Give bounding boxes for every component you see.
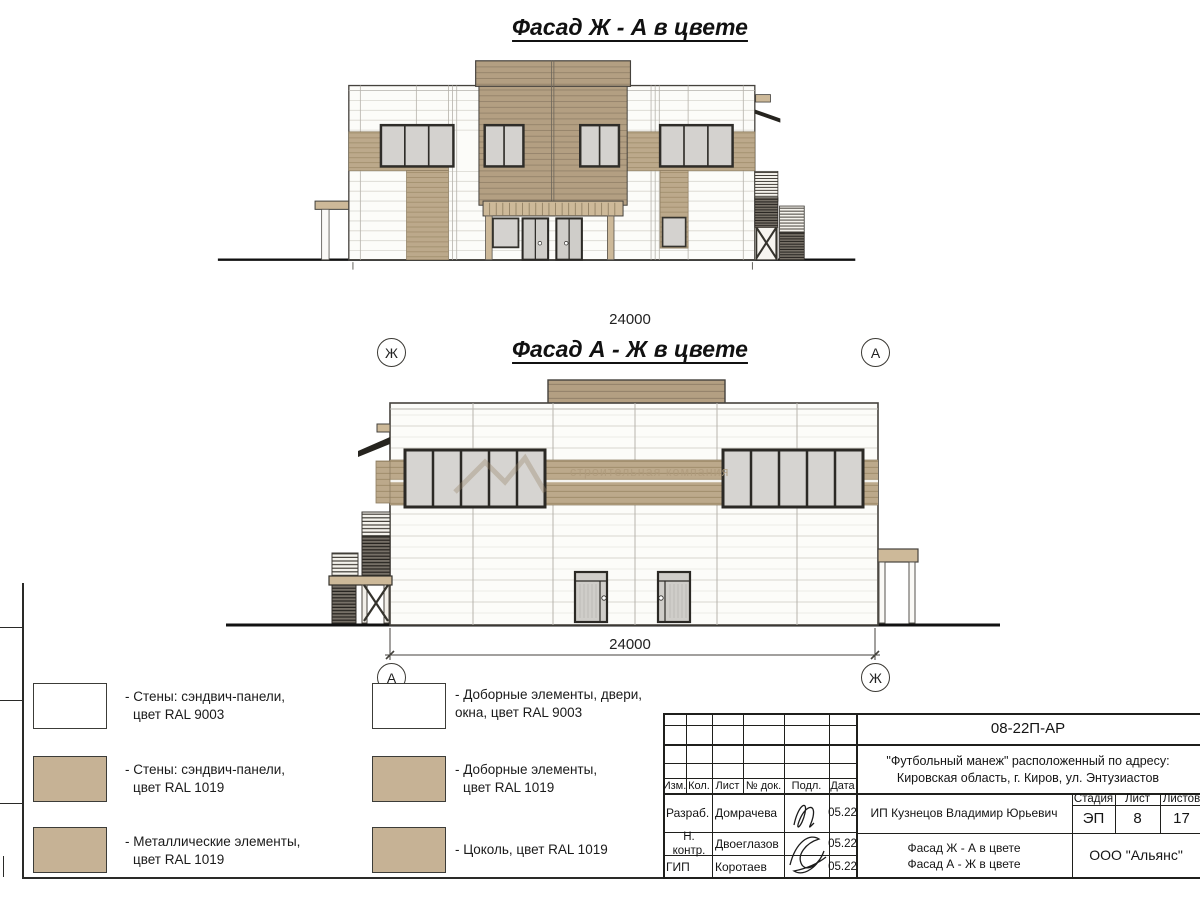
window-2pane-left [485,125,524,166]
facade2-axis-right: Ж [861,663,890,692]
canopy-post-right [607,216,614,260]
door-right [658,572,690,622]
signature-strokes [784,793,829,878]
col-header-podp: Подл. [784,778,829,793]
staff-date: 05.22 [829,855,856,878]
frame-tick [3,856,4,877]
col-header-date: Дата [829,778,856,793]
tan-stripe-left [406,171,448,260]
legend-text: - Цоколь, цвет RAL 1019 [455,842,608,857]
sheet-number: 8 [1115,805,1160,833]
sheets-total: 17 [1160,805,1200,833]
parapet [548,380,725,404]
legend-swatch-metal [33,827,107,873]
stage-label: Стадия [1072,793,1115,805]
window-2pane-right [580,125,619,166]
entrance-door-right [556,218,582,259]
legend-text: - Металлические элементы, [125,834,300,849]
small-window [663,218,686,247]
legend-swatch-ral1019 [33,756,107,802]
facade2-title: Фасад А - Ж в цвете [400,336,860,363]
legend-text: - Доборные элементы, двери, [455,687,642,702]
staff-role: Разраб. [663,793,712,832]
legend-label: - Доборные элементы, цвет RAL 1019 [455,761,597,797]
stage-value: ЭП [1072,805,1115,833]
legend-text: цвет RAL 1019 [455,779,597,797]
building-body [390,403,878,625]
ribbon-window-right [723,450,863,507]
staff-name: Коротаев [712,855,784,878]
sheet-title-line2: Фасад А - Ж в цвете [856,855,1072,873]
staff-name: Домрачева [712,793,784,832]
staff-date: 05.22 [829,832,856,855]
entrance-door-left [523,218,549,259]
left-canopy [315,201,353,260]
drawing-sheet: Фасад Ж - А в цвете [0,0,1200,900]
right-canopy [878,549,918,623]
doc-code: 08-22П-АР [856,713,1200,744]
legend-text: цвет RAL 1019 [125,779,285,797]
legend-label: - Цоколь, цвет RAL 1019 [455,841,608,859]
sheet-title-line1: Фасад Ж - А в цвете [856,835,1072,855]
right-roof-canopy [755,95,781,123]
legend-text: - Стены: сэндвич-панели, [125,689,285,704]
legend-swatch-trim1019 [372,756,446,802]
tan-stripe-right [660,171,688,249]
exterior-stairs-right [755,171,804,259]
staff-role: Н. контр. [663,832,712,855]
canopy-post-left [486,216,493,260]
frame-left-line [22,583,24,878]
facade1-axis-right: А [861,338,890,367]
exterior-stairs-left [329,424,392,623]
facade2-drawing [180,370,1020,660]
legend-label: - Стены: сэндвич-панели, цвет RAL 9003 [125,688,285,724]
window-3pane-right [660,125,732,166]
sheets-label: Листов [1160,793,1200,805]
legend-text: цвет RAL 9003 [125,706,285,724]
frame-tick [0,700,22,701]
legend-text: окна, цвет RAL 9003 [455,704,642,722]
legend-text: - Доборные элементы, [455,762,597,777]
facade2-dimension: 24000 [585,636,675,653]
legend-label: - Доборные элементы, двери, окна, цвет R… [455,686,642,722]
project-address-line2: Кировская область, г. Киров, ул. Энтузиа… [856,768,1200,788]
legend-swatch-plinth [372,827,446,873]
facade1-dimension: 24000 [585,311,675,328]
legend-swatch-ral9003 [33,683,107,729]
staff-date: 05.22 [829,793,856,832]
project-address-line1: "Футбольный манеж" расположенный по адре… [856,744,1200,768]
legend-label: - Стены: сэндвич-панели, цвет RAL 1019 [125,761,285,797]
legend-text: цвет RAL 1019 [125,851,300,869]
staff-role: ГИП [663,855,712,878]
col-header-izm: Изм. [663,778,686,793]
window-3pane-left [381,125,453,166]
frame-tick [0,803,22,804]
legend-label: - Металлические элементы, цвет RAL 1019 [125,833,300,869]
staff-name: Двоеглазов [712,832,784,855]
entrance-window [493,218,519,247]
col-header-kol: Кол. [686,778,712,793]
watermark-text: строительная компания [570,465,729,479]
company-name: ООО "Альянс" [1072,833,1200,877]
dimension-lines [349,262,757,293]
customer-name: ИП Кузнецов Владимир Юрьевич [856,793,1072,833]
facade1-drawing [180,55,1020,315]
col-header-list: Лист [712,778,743,793]
door-left [575,572,607,622]
facade1-title: Фасад Ж - А в цвете [400,14,860,41]
frame-tick [0,627,22,628]
legend-swatch-trim9003 [372,683,446,729]
legend-text: - Стены: сэндвич-панели, [125,762,285,777]
sheet-label: Лист [1115,793,1160,805]
col-header-doc: № док. [743,778,784,793]
